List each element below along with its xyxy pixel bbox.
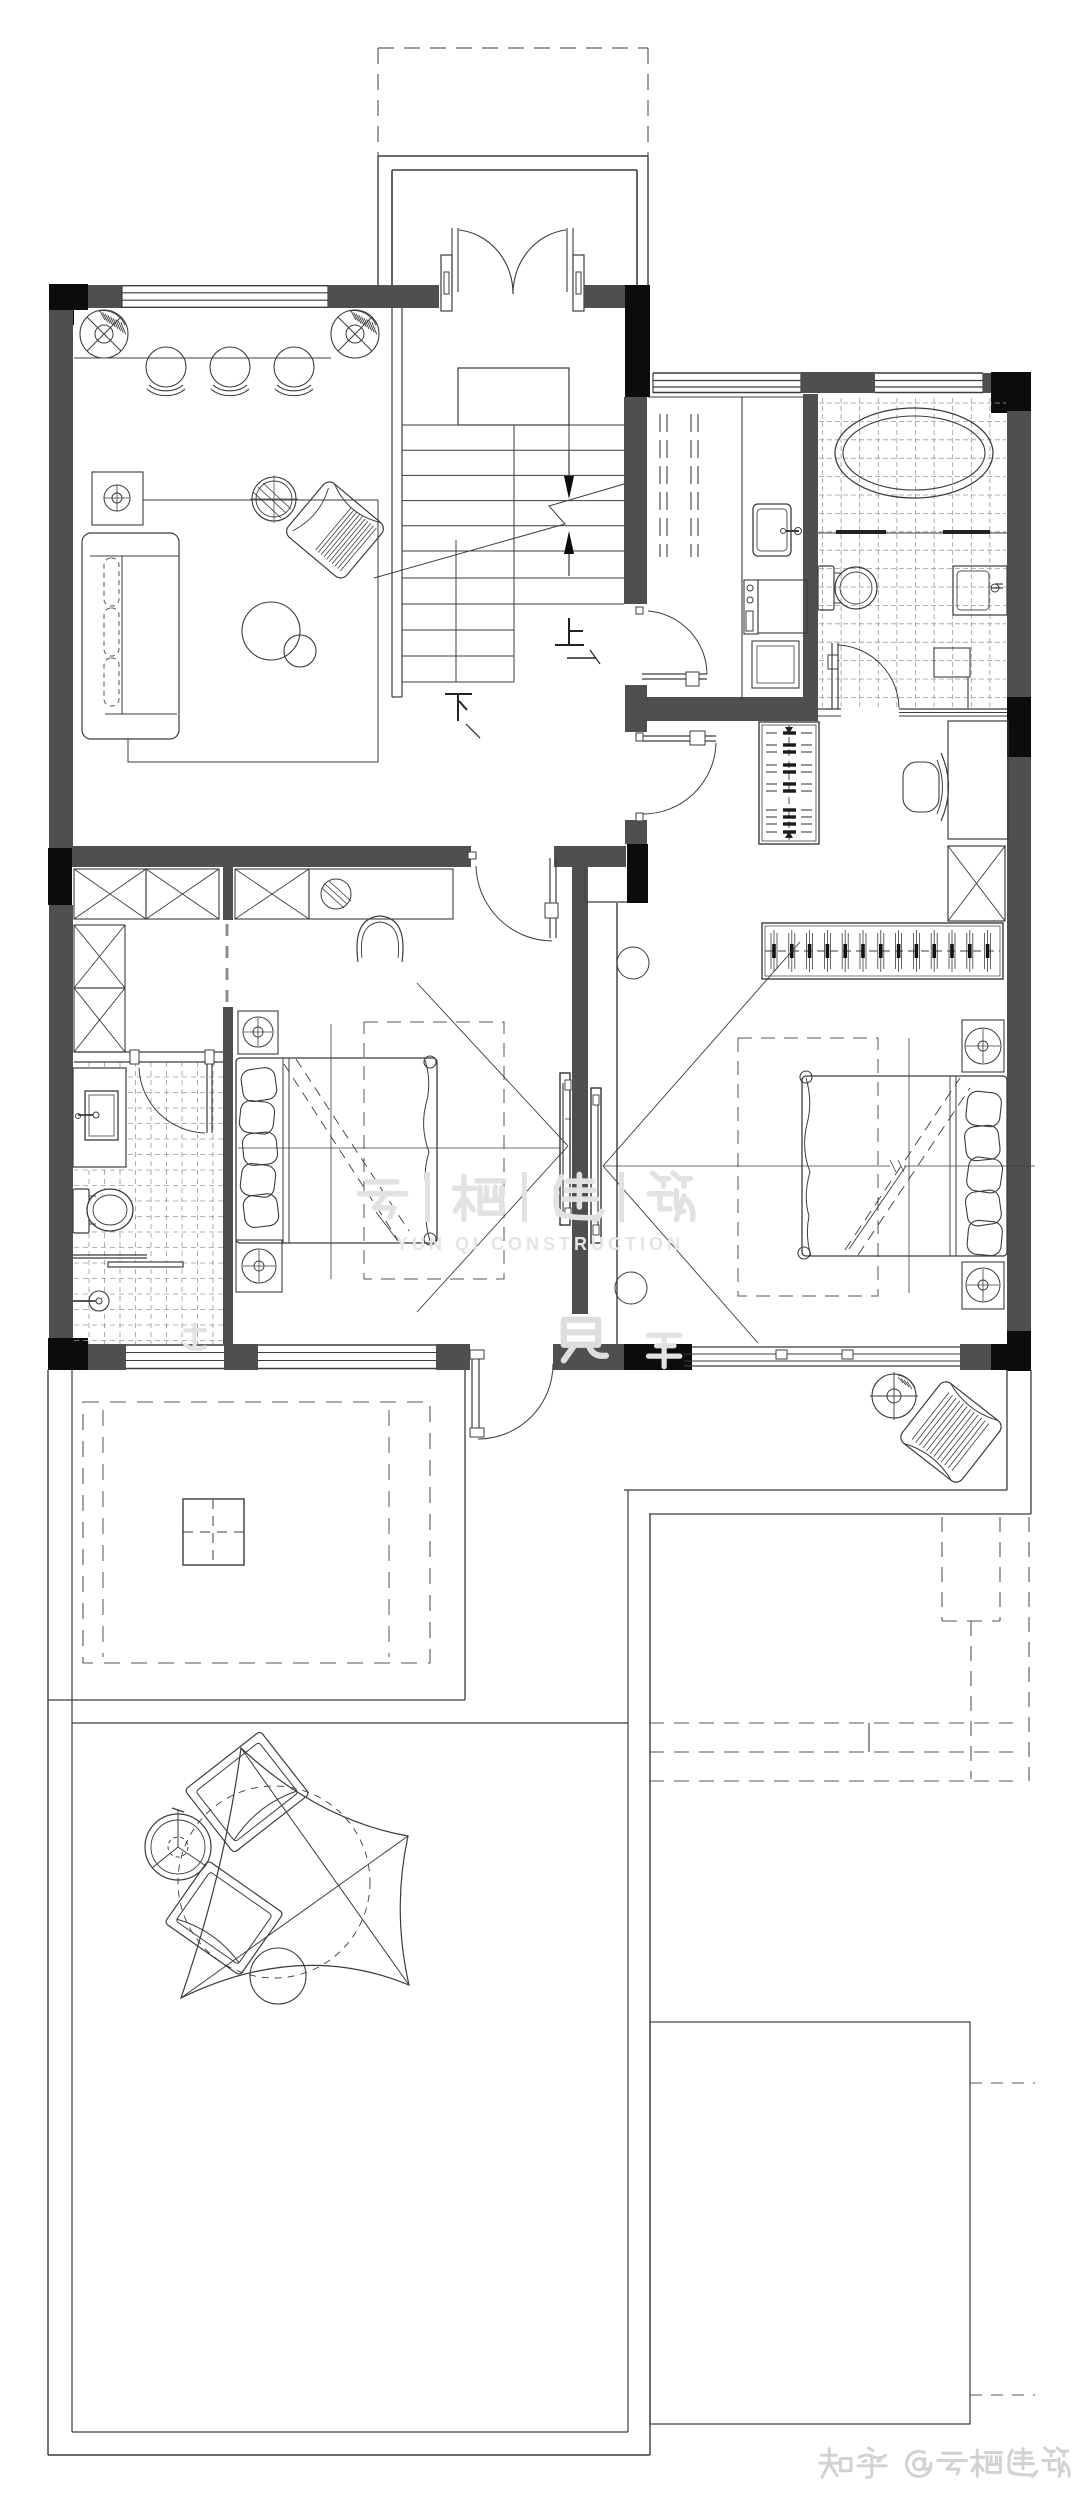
svg-text:YUN QI CONSTRUCTION: YUN QI CONSTRUCTION: [396, 1234, 684, 1254]
